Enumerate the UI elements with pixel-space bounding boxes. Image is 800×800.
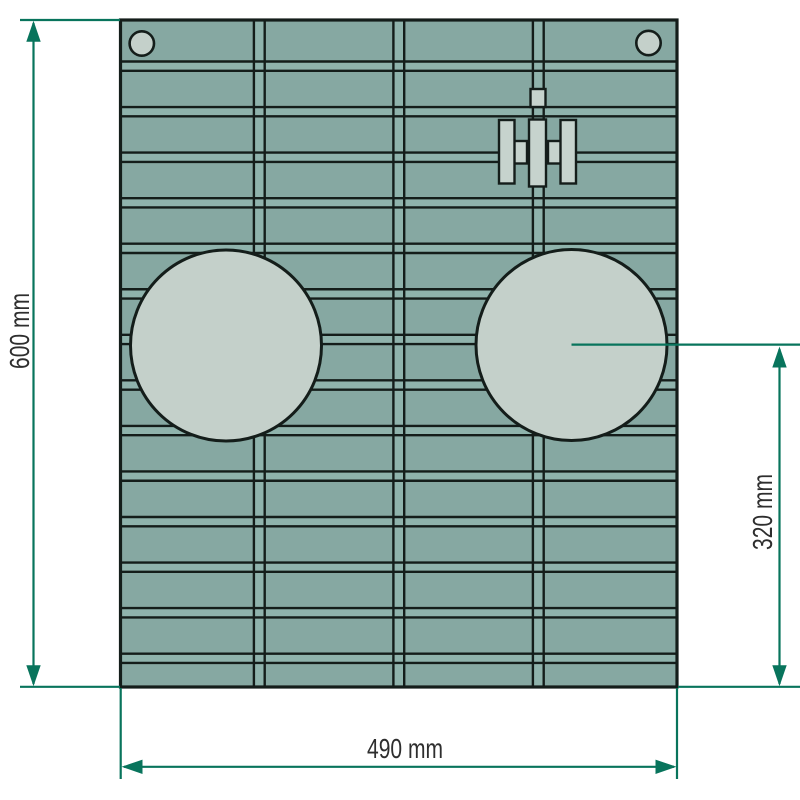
ih-logo-right-crossbar — [548, 141, 561, 164]
drawing-canvas: 600 mm 490 mm 320 mm — [0, 0, 800, 800]
arrow-up-600 — [26, 21, 40, 42]
arrow-right-490 — [656, 760, 677, 774]
dimension-label-light-center: 320 mm — [747, 474, 778, 550]
arrow-left-490 — [122, 760, 143, 774]
ih-logo-left-crossbar — [514, 141, 527, 164]
arrow-down-320 — [772, 665, 786, 686]
headlight-hole-left — [131, 250, 322, 441]
dimension-label-width: 490 mm — [367, 733, 443, 764]
mounting-hole-right — [636, 31, 660, 55]
dimension-label-height: 600 mm — [4, 293, 35, 369]
ih-logo-right-bar — [561, 120, 577, 184]
mounting-hole-left — [130, 31, 154, 55]
ih-logo-top-serif — [531, 89, 546, 107]
arrow-down-600 — [26, 665, 40, 686]
ih-logo-center-bar — [529, 120, 546, 187]
grille-dimension-drawing: 600 mm 490 mm 320 mm — [0, 0, 800, 800]
arrow-up-320 — [772, 347, 786, 368]
ih-logo-left-bar — [499, 120, 515, 184]
